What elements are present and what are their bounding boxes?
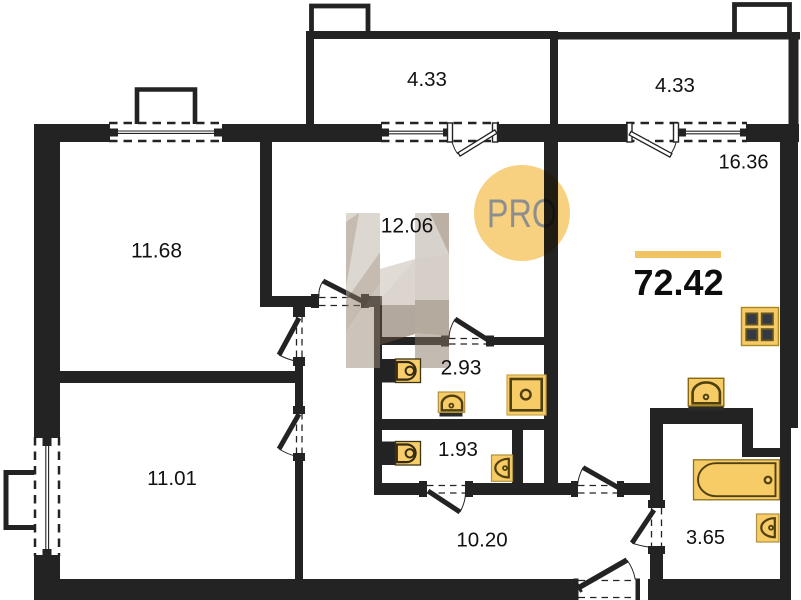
svg-text:10.20: 10.20 [456,529,507,552]
svg-text:12.06: 12.06 [381,215,434,238]
svg-text:4.33: 4.33 [655,74,695,97]
svg-text:4.33: 4.33 [407,68,447,91]
svg-text:3.65: 3.65 [686,527,725,549]
svg-text:PRO: PRO [487,191,557,236]
svg-text:2.93: 2.93 [441,357,482,380]
svg-text:11.01: 11.01 [147,467,197,490]
svg-text:1.93: 1.93 [438,438,478,461]
svg-text:16.36: 16.36 [718,152,768,174]
svg-text:72.42: 72.42 [634,262,724,303]
svg-text:11.68: 11.68 [131,240,182,263]
